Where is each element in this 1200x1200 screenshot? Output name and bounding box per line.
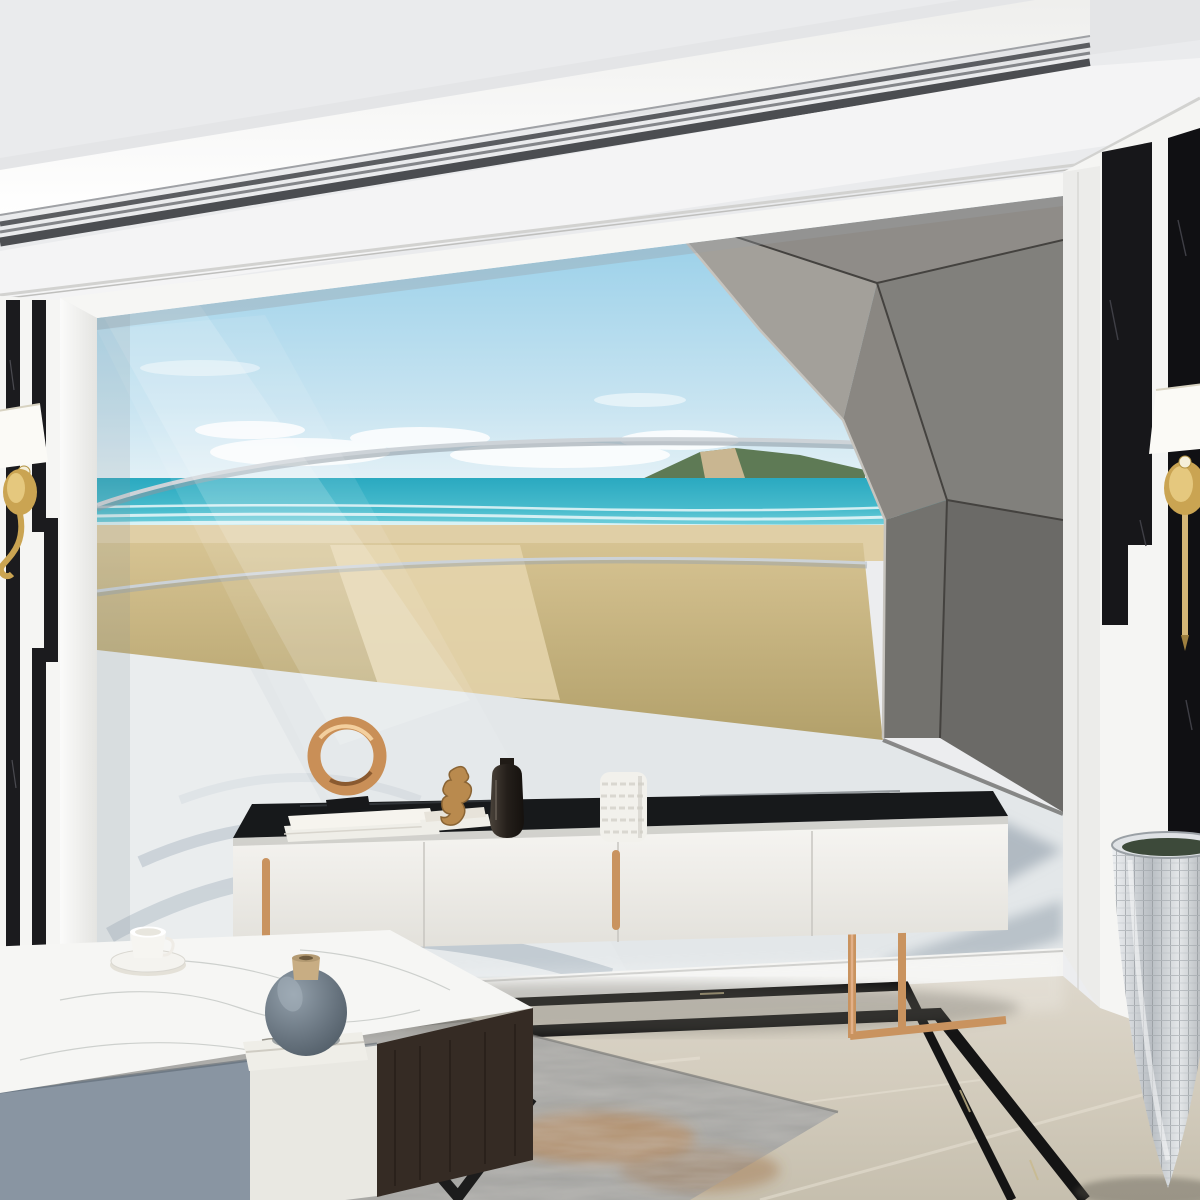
- coffee-table: [0, 927, 533, 1200]
- living-room-photo: [0, 0, 1200, 1200]
- sconce-right-backplate-hi: [1169, 466, 1193, 502]
- sconce-left-shade: [0, 404, 48, 470]
- sconce-right-stem: [1182, 505, 1188, 635]
- frame-left-jamb: [60, 298, 97, 1030]
- concrete-facet-lowleft: [883, 500, 947, 738]
- sconce-right-shade: [1149, 384, 1200, 454]
- frame-right-pilaster: [1063, 166, 1100, 1010]
- white-textured-vase: [600, 772, 647, 842]
- scene-canvas: [0, 0, 1200, 1200]
- concrete-facet-lowright: [940, 500, 1063, 812]
- dark-bottle-vase: [490, 758, 524, 838]
- sconce-left-backplate-hi: [7, 473, 25, 503]
- round-vase-body: [265, 968, 347, 1056]
- sconce-right-crystal: [1179, 456, 1191, 468]
- mural-left-inner-shadow: [97, 314, 130, 1004]
